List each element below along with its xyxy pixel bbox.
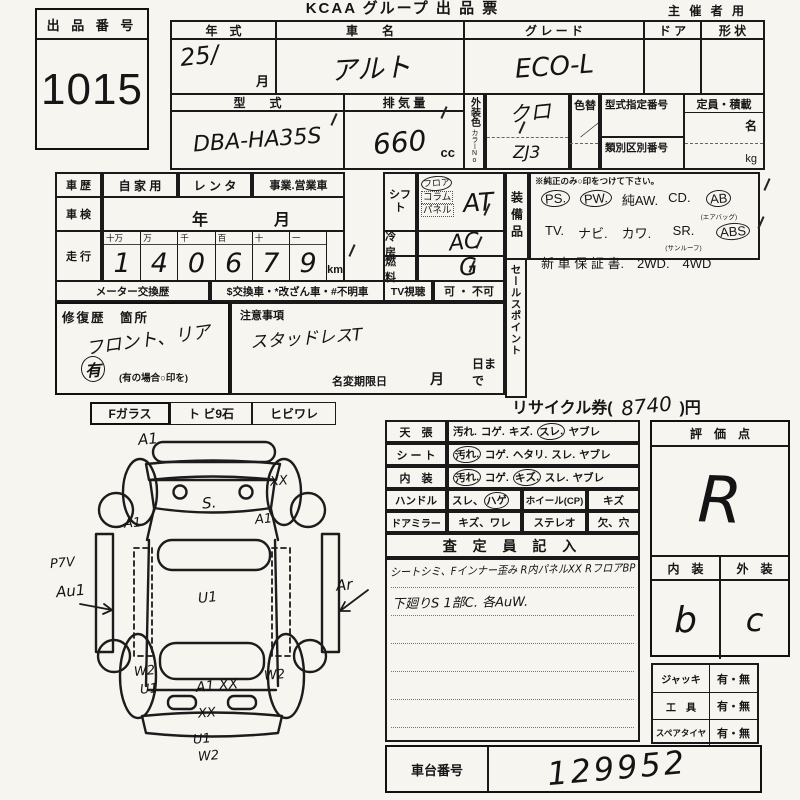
equipment-label-cell: 装備品 [505, 172, 529, 260]
year-header: 年 式 [170, 20, 277, 40]
spare-tire-options: 有・無 [710, 720, 757, 745]
rating-value: R [650, 445, 790, 558]
shift-option-panel: パネル [421, 204, 454, 217]
accessories-table: ジャッキ 有・無 工 具 有・無 スペアタイヤ 有・無 [651, 663, 759, 744]
wheel-label: ホイール(CP) [522, 489, 587, 511]
shift-option-column: コラム [421, 191, 453, 204]
caution-box: 注意事項 スタッドレスT 名変期限日 月 日まで [230, 302, 505, 395]
car-diagram-svg [50, 428, 385, 798]
damage-mark: W2 [197, 748, 219, 765]
equip-kawa: カワ. [622, 223, 652, 242]
sales-point-cell: セールスポイント [505, 258, 527, 398]
damage-mark: A1 [254, 511, 272, 527]
displacement-unit: cc [441, 145, 455, 160]
mirror-label: ドアミラー [385, 511, 447, 533]
mileage-digit-box: 百 6 [216, 232, 253, 280]
exterior-grade-header: 外 装 [721, 557, 788, 579]
class-no-label: 類別区別番号 [602, 138, 683, 155]
mileage-label: 走 行 [55, 230, 102, 282]
auction-sheet-scan: { "header":{"title":"KCAA グループ 出 品 票","a… [0, 0, 800, 800]
mileage-digit-box: 一 9 [290, 232, 327, 280]
wheel-options: キズ [587, 489, 640, 511]
sales-point-label: セールスポイント [509, 264, 524, 356]
model-value: DBA-HA35S [192, 123, 322, 157]
jack-options: 有・無 [710, 665, 757, 692]
equipment-note: ※純正のみ○印をつけて下さい。 [531, 174, 758, 187]
mileage-digit-box: 千 0 [178, 232, 215, 280]
model-cell: DBA-HA35S [170, 110, 345, 170]
fuel-label: 燃 料 [383, 255, 417, 282]
door-cell [643, 38, 702, 95]
interior-grade-value: b [652, 581, 721, 659]
chassis-box: 車台番号 129952 [385, 745, 762, 793]
recycle-suffix: )円 [679, 394, 700, 418]
equip-ps: PS. [540, 189, 570, 208]
tools-options: 有・無 [710, 693, 757, 719]
ceiling-options: 汚れ.コゲ.キズ.スレ.ヤブレ [447, 420, 640, 443]
car-diagram: A1 XX S. A1 A1 P7V Au1 U1 Ar W2 U1 A1 XX… [50, 428, 385, 798]
car-history-rental: レ ン タ [178, 172, 252, 198]
inspector-note-line1: シートシミ、Fインナー歪み R内パネルXX RフロアBP [390, 559, 636, 580]
tick-mark [763, 178, 770, 191]
lot-number-value: 1015 [37, 40, 147, 140]
mileage-digit: 4 [141, 245, 177, 281]
type-cert-cell: 型式指定番号 [600, 93, 685, 138]
color-no-label: カラーNo. [469, 129, 479, 171]
door-header: ド ア [643, 20, 702, 40]
caution-label: 注意事項 [232, 304, 503, 323]
mirror-options: キズ、ワレ [447, 511, 522, 533]
rating-header: 評 価 点 [652, 422, 788, 447]
handle-options: スレ、ハゲ [447, 489, 522, 511]
damage-mark: XX [269, 473, 288, 489]
damage-mark: A1 [123, 515, 141, 531]
meter-history-options: $交換車・*改ざん車・#不明車 [210, 280, 385, 302]
damage-mark: S. [201, 493, 217, 512]
grade-header: グ レ ー ド [463, 20, 645, 40]
type-cert-label: 型式指定番号 [602, 95, 683, 112]
equip-ab-sub: (エアバッグ) [701, 214, 738, 221]
year-value: 25/ [179, 40, 220, 72]
mileage-digit-box: 十 7 [253, 232, 290, 280]
car-cabin [134, 540, 290, 686]
repair-note: (有の場合○印を) [119, 370, 188, 384]
damage-mark: P7V [49, 555, 75, 572]
damage-mark: U1 [192, 731, 211, 747]
fglass-opt-crack: ヒビワレ [252, 402, 336, 425]
color-change-cell: 色替 ／ [570, 93, 600, 170]
ext-color-label: 外装色 [467, 97, 482, 127]
stereo-label: ステレオ [522, 511, 587, 533]
inspector-header: 査 定 員 記 入 [385, 533, 640, 558]
audience-label: 主 催 者 用 [668, 2, 747, 19]
lot-number-label: 出 品 番 号 [37, 10, 147, 40]
chassis-value: 129952 [546, 743, 689, 793]
equip-navi: ナビ. [578, 223, 608, 242]
fglass-label: Fガラス [90, 402, 170, 425]
inspection-cell: 年 月 [102, 196, 345, 232]
equip-sr: SR. [673, 223, 695, 238]
recycle-line: リサイクル券( 8740 )円 [512, 394, 701, 418]
equip-sr-sub: (サンルーフ) [665, 245, 701, 252]
exterior-grade-value: c [721, 581, 788, 659]
equip-tv: TV. [545, 223, 564, 238]
seat-label: シ ー ト [385, 443, 447, 466]
damage-mark: Au1 [55, 581, 86, 601]
inspection-label: 車 検 [55, 196, 102, 232]
equipment-label: 装備品 [509, 191, 526, 242]
rename-month: 月 [430, 369, 444, 389]
meter-history-label: メーター交換歴 [55, 280, 210, 302]
equipment-cell: ※純正のみ○印をつけて下さい。 PS. PW. 純AW. CD. AB(エアバッ… [529, 172, 760, 260]
fuel-value: G [458, 252, 479, 282]
tick-mark [348, 244, 355, 257]
name-header: 車 名 [275, 20, 465, 40]
spare-tire-label: スペアタイヤ [653, 720, 710, 745]
caution-value: スタッドレスT [249, 320, 363, 353]
ext-color-value: クロ [508, 95, 553, 129]
lot-number-box: 出 品 番 号 1015 [35, 8, 149, 150]
mileage-digit: 6 [216, 245, 252, 281]
damage-mark: U1 [197, 589, 217, 607]
grade-cell: ECO-L [463, 38, 645, 95]
grade-value: ECO-L [514, 49, 595, 84]
equip-cd: CD. [668, 190, 690, 205]
mileage-digit-box: 十万 1 [104, 232, 141, 280]
capacity-cell: 定員・積載 名 kg [683, 93, 765, 170]
rename-day: 日まで [472, 355, 503, 389]
damage-mark: Ar [335, 575, 353, 594]
recycle-prefix: リサイクル券( [512, 394, 613, 418]
handle-label: ハンドル [385, 489, 447, 511]
tv-options: 可 ・ 不可 [433, 280, 505, 302]
interior-label: 内 装 [385, 466, 447, 489]
shift-label: シフト [383, 172, 417, 232]
shift-value: AT [462, 187, 495, 218]
capacity-person: 名 [685, 113, 763, 134]
damage-mark: W2 [133, 663, 155, 680]
mileage-unit: km [327, 232, 343, 280]
car-history-label: 車 歴 [55, 172, 102, 198]
rename-deadline-label: 名変期限日 [332, 373, 387, 389]
inspection-month: 月 [274, 206, 290, 230]
equip-ab: AB [706, 189, 732, 208]
tools-label: 工 具 [653, 693, 710, 719]
damage-mark: U1 [139, 681, 158, 697]
shift-option-floor: フロア [421, 175, 453, 192]
damage-mark: XX [197, 705, 216, 721]
color-no-value: ZJ3 [513, 143, 540, 163]
form-title: KCAA グループ 出 品 票 [230, 0, 575, 18]
recycle-amount: 8740 [619, 391, 672, 420]
equip-abs: ABS [715, 222, 750, 241]
stereo-options: 欠、穴 [587, 511, 640, 533]
equip-aw: 純AW. [622, 190, 658, 209]
damage-mark: W2 [263, 667, 285, 684]
car-history-private: 自 家 用 [102, 172, 178, 198]
interior-options: 汚れ.コゲ.キズ.スレ.ヤブレ [447, 466, 640, 489]
displacement-cell: 660 cc [343, 110, 465, 170]
seat-options: 汚れ.コゲ.ヘタリ.スレ.ヤブレ [447, 443, 640, 466]
capacity-kg: kg [745, 153, 757, 165]
jack-label: ジャッキ [653, 665, 710, 692]
equip-pw: PW. [579, 189, 612, 208]
mileage-digit: 7 [253, 245, 289, 281]
name-cell: アルト [275, 38, 465, 95]
shape-cell [700, 38, 765, 95]
inspection-year: 年 [192, 206, 208, 230]
inspector-notes: シートシミ、Fインナー歪み R内パネルXX RフロアBP 下廻りS 1部C. 各… [385, 558, 640, 742]
ext-color-cell: クロ ZJ3 [485, 93, 570, 170]
mileage-digit: 1 [104, 245, 140, 281]
mileage-digit: 0 [178, 245, 214, 281]
repair-history-box: 修復歴 箇所 フロント、リア 有 (有の場合○印を) [55, 302, 230, 395]
car-history-business: 事業.営業車 [252, 172, 345, 198]
inspector-note-line2: 下廻りS 1部C. 各AuW. [392, 591, 528, 612]
fglass-opt-stone: ト ビ9石 [170, 402, 252, 425]
displacement-value: 660 [372, 124, 428, 162]
ceiling-label: 天 張 [385, 420, 447, 443]
color-change-value: ／ [580, 117, 596, 141]
month-suffix: 月 [256, 71, 269, 90]
class-no-cell: 類別区別番号 [600, 136, 685, 170]
mileage-cell: 十万 1 万 4 千 0 百 6 十 7 一 9 km [102, 230, 345, 282]
fuel-cell: G [417, 255, 505, 282]
rating-box: 評 価 点 R 内 装 外 装 b c [650, 420, 790, 657]
equipment-row3: 新 車 保 証 書. 2WD. 4WD [531, 253, 758, 272]
mileage-digit: 9 [290, 245, 326, 281]
tv-label: TV視聴 [383, 280, 433, 302]
capacity-label: 定員・積載 [685, 95, 763, 113]
color-change-label: 色替 [572, 97, 598, 113]
damage-mark: A1 [137, 429, 158, 449]
mileage-digit-box: 万 4 [141, 232, 178, 280]
shape-header: 形 状 [700, 20, 765, 40]
year-cell: 25/ 月 [170, 38, 277, 95]
shift-cell: フロア コラム パネル AT [417, 172, 505, 232]
repair-has-mark: 有 [80, 355, 106, 383]
ext-color-label-cell: 外装色 カラーNo. [463, 93, 485, 170]
car-name-value: アルト [329, 45, 412, 88]
interior-grade-header: 内 装 [652, 557, 721, 579]
chassis-label: 車台番号 [387, 747, 489, 791]
annotation-arrows [80, 590, 368, 614]
